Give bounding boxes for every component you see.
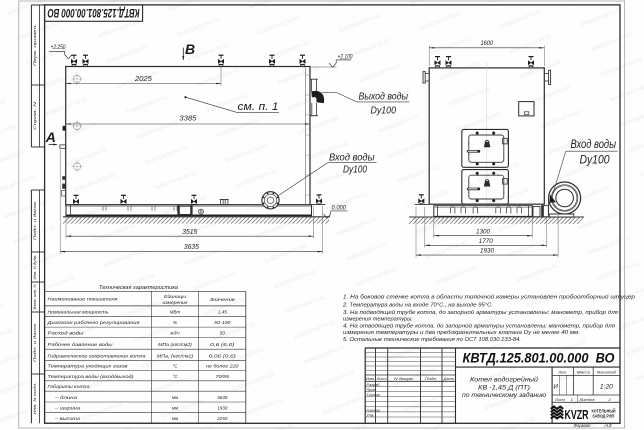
svg-text:3635: 3635 (184, 244, 199, 251)
svg-text:– высота: – высота (54, 416, 81, 421)
svg-text:Перв. примен.: Перв. примен. (33, 24, 37, 66)
svg-text:МПа, (кгс/см2): МПа, (кгс/см2) (157, 353, 194, 358)
svg-text:Номинальная мощность: Номинальная мощность (48, 310, 110, 315)
svg-text:Утв.: Утв. (367, 412, 375, 417)
svg-text:Подп.: Подп. (425, 376, 437, 381)
svg-text:Изм.: Изм. (366, 376, 375, 381)
svg-text:И: И (554, 385, 559, 391)
svg-text:Значение: Значение (210, 297, 236, 303)
svg-text:Формат: Формат (574, 423, 591, 428)
svg-text:2. Температура воды на входе 7: 2. Температура воды на входе 70°С., на в… (342, 302, 493, 308)
svg-text:КВТД.125.801.00.000 ВО: КВТД.125.801.00.000 ВО (463, 350, 615, 365)
svg-text:А3: А3 (603, 423, 612, 428)
svg-text:Единицы: Единицы (164, 294, 187, 299)
svg-text:+2.250: +2.250 (51, 45, 67, 51)
svg-text:2025: 2025 (134, 76, 152, 83)
svg-text:Лист: Лист (554, 397, 566, 402)
svg-text:Гидравлическое сопротивление к: Гидравлическое сопротивление котла (48, 353, 146, 358)
svg-text:Габариты котла: Габариты котла (48, 384, 90, 389)
svg-text:мм: мм (172, 416, 178, 421)
svg-text:Техническая характеристика: Техническая характеристика (99, 285, 178, 291)
svg-text:см. п. 1: см. п. 1 (238, 101, 279, 113)
svg-text:Взам. инв. N: Взам. инв. N (33, 284, 37, 309)
svg-text:МВт: МВт (170, 310, 181, 315)
svg-text:1930: 1930 (217, 406, 228, 411)
svg-text:Инв. N дубл.: Инв. N дубл. (33, 255, 37, 280)
svg-text:Подп. и дата: Подп. и дата (33, 202, 37, 240)
svg-text:+2.100: +2.100 (338, 55, 354, 61)
svg-text:Лит.: Лит. (557, 370, 567, 375)
svg-text:70/95: 70/95 (216, 374, 230, 379)
svg-text:Dy100: Dy100 (371, 104, 397, 116)
svg-text:%: % (173, 320, 177, 325)
svg-text:Вход воды: Вход воды (571, 139, 617, 151)
svg-text:Справ. N: Справ. N (33, 101, 37, 130)
svg-text:ЗАВОД РЭП: ЗАВОД РЭП (592, 414, 614, 419)
svg-text:°С: °С (172, 374, 178, 379)
svg-text:0.000: 0.000 (332, 205, 347, 211)
svg-text:Температура уходящих газов: Температура уходящих газов (48, 363, 129, 368)
svg-text:по техническому заданию: по техническому заданию (462, 392, 546, 399)
svg-text:Диапазон рабочего регулировани: Диапазон рабочего регулирования (46, 320, 140, 325)
svg-text:1600: 1600 (481, 41, 494, 47)
svg-text:Расход воды: Расход воды (48, 331, 85, 336)
svg-text:МПа (кгс/см2): МПа (кгс/см2) (158, 342, 192, 347)
svg-text:– ширина: – ширина (54, 406, 81, 411)
svg-text:Масштаб: Масштаб (597, 370, 617, 375)
svg-text:мм: мм (172, 406, 178, 411)
svg-text:2250: 2250 (216, 416, 228, 421)
svg-text:– длина: – длина (54, 395, 78, 400)
svg-text:3. На подводящей трубе котла,: 3. На подводящей трубе котла, до запорно… (343, 309, 618, 316)
svg-text:Выход воды: Выход воды (359, 91, 409, 103)
svg-text:Температура воды (вход/выход): Температура воды (вход/выход) (48, 374, 135, 379)
svg-text:Лист: Лист (376, 376, 388, 381)
svg-text:3515: 3515 (182, 229, 197, 236)
svg-text:Вход воды: Вход воды (329, 152, 375, 164)
svg-text:Подп. и дата: Подп. и дата (33, 324, 37, 362)
svg-text:измерения: измерения (163, 300, 189, 305)
svg-text:Инв. N подл.: Инв. N подл. (33, 383, 37, 415)
svg-text:А: А (45, 129, 56, 145)
svg-text:4. На отводящей трубе котла, д: 4. На отводящей трубе котла, до запорной… (343, 323, 615, 330)
svg-text:мм: мм (172, 395, 178, 400)
svg-text:N докум.: N докум. (394, 376, 414, 381)
svg-text:Масса: Масса (577, 370, 591, 375)
svg-text:Т.контр.: Т.контр. (367, 392, 381, 397)
svg-text:5. Остальные технические требо: 5. Остальные технические требования по О… (343, 337, 521, 343)
svg-text:1: 1 (571, 397, 573, 402)
svg-text:50: 50 (220, 331, 226, 336)
svg-text:Листов: Листов (578, 397, 594, 402)
svg-text:Котел водогрейный: Котел водогрейный (470, 377, 539, 384)
svg-text:3635: 3635 (217, 395, 228, 400)
svg-text:измерения температуры и два пр: измерения температуры и два предохраните… (343, 330, 580, 336)
svg-text:КВТД.125.801.00.000 ВО: КВТД.125.801.00.000 ВО (47, 6, 139, 20)
svg-text:Рабочее давление воды: Рабочее давление воды (48, 342, 114, 347)
svg-text:KVZR: KVZR (565, 407, 589, 422)
svg-text:КВ -1,45 Д (ПТ): КВ -1,45 Д (ПТ) (478, 384, 530, 391)
svg-text:Dy100: Dy100 (580, 154, 611, 166)
svg-text:50-100: 50-100 (214, 320, 231, 325)
svg-text:м3/ч: м3/ч (170, 331, 180, 336)
svg-text:3385: 3385 (179, 116, 196, 123)
svg-text:1930: 1930 (480, 248, 494, 255)
svg-text:1. На боковой стенке котла в о: 1. На боковой стенке котла в области топ… (343, 294, 635, 301)
svg-text:В: В (185, 41, 195, 57)
svg-text:1770: 1770 (479, 238, 493, 245)
svg-text:0,6 (6,0): 0,6 (6,0) (210, 342, 235, 347)
svg-text:1300: 1300 (476, 228, 490, 235)
svg-text:0,06 (0,6): 0,06 (0,6) (209, 353, 237, 358)
svg-text:не более 220: не более 220 (206, 363, 239, 368)
svg-text:°С: °С (172, 363, 178, 368)
svg-text:1:20: 1:20 (600, 385, 614, 391)
svg-text:Dy100: Dy100 (343, 164, 367, 176)
svg-text:измерения температуры.: измерения температуры. (343, 317, 413, 323)
svg-text:Наименование показателя: Наименование показателя (48, 297, 118, 303)
svg-text:Дата: Дата (443, 376, 455, 381)
svg-text:1,45: 1,45 (218, 310, 228, 315)
